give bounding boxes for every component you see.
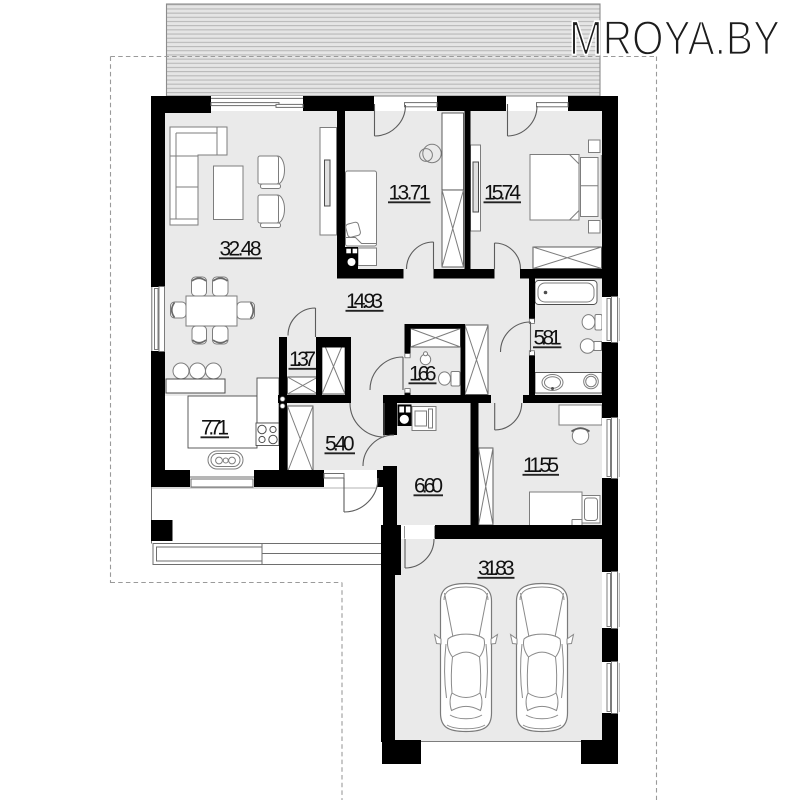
svg-text:5.81: 5.81 [534,327,562,350]
svg-text:1.66: 1.66 [409,363,437,386]
svg-text:11.55: 11.55 [523,454,559,477]
svg-text:6.60: 6.60 [414,475,443,498]
svg-text:1.37: 1.37 [289,348,316,371]
svg-text:7.71: 7.71 [201,417,229,440]
svg-text:5.40: 5.40 [325,433,355,456]
svg-text:14.93: 14.93 [346,290,383,313]
svg-text:32.48: 32.48 [220,238,262,261]
svg-text:15.74: 15.74 [484,182,521,205]
svg-text:MROYA.BY: MROYA.BY [569,13,780,66]
svg-text:13.71: 13.71 [389,182,431,205]
svg-text:31.83: 31.83 [478,557,515,580]
